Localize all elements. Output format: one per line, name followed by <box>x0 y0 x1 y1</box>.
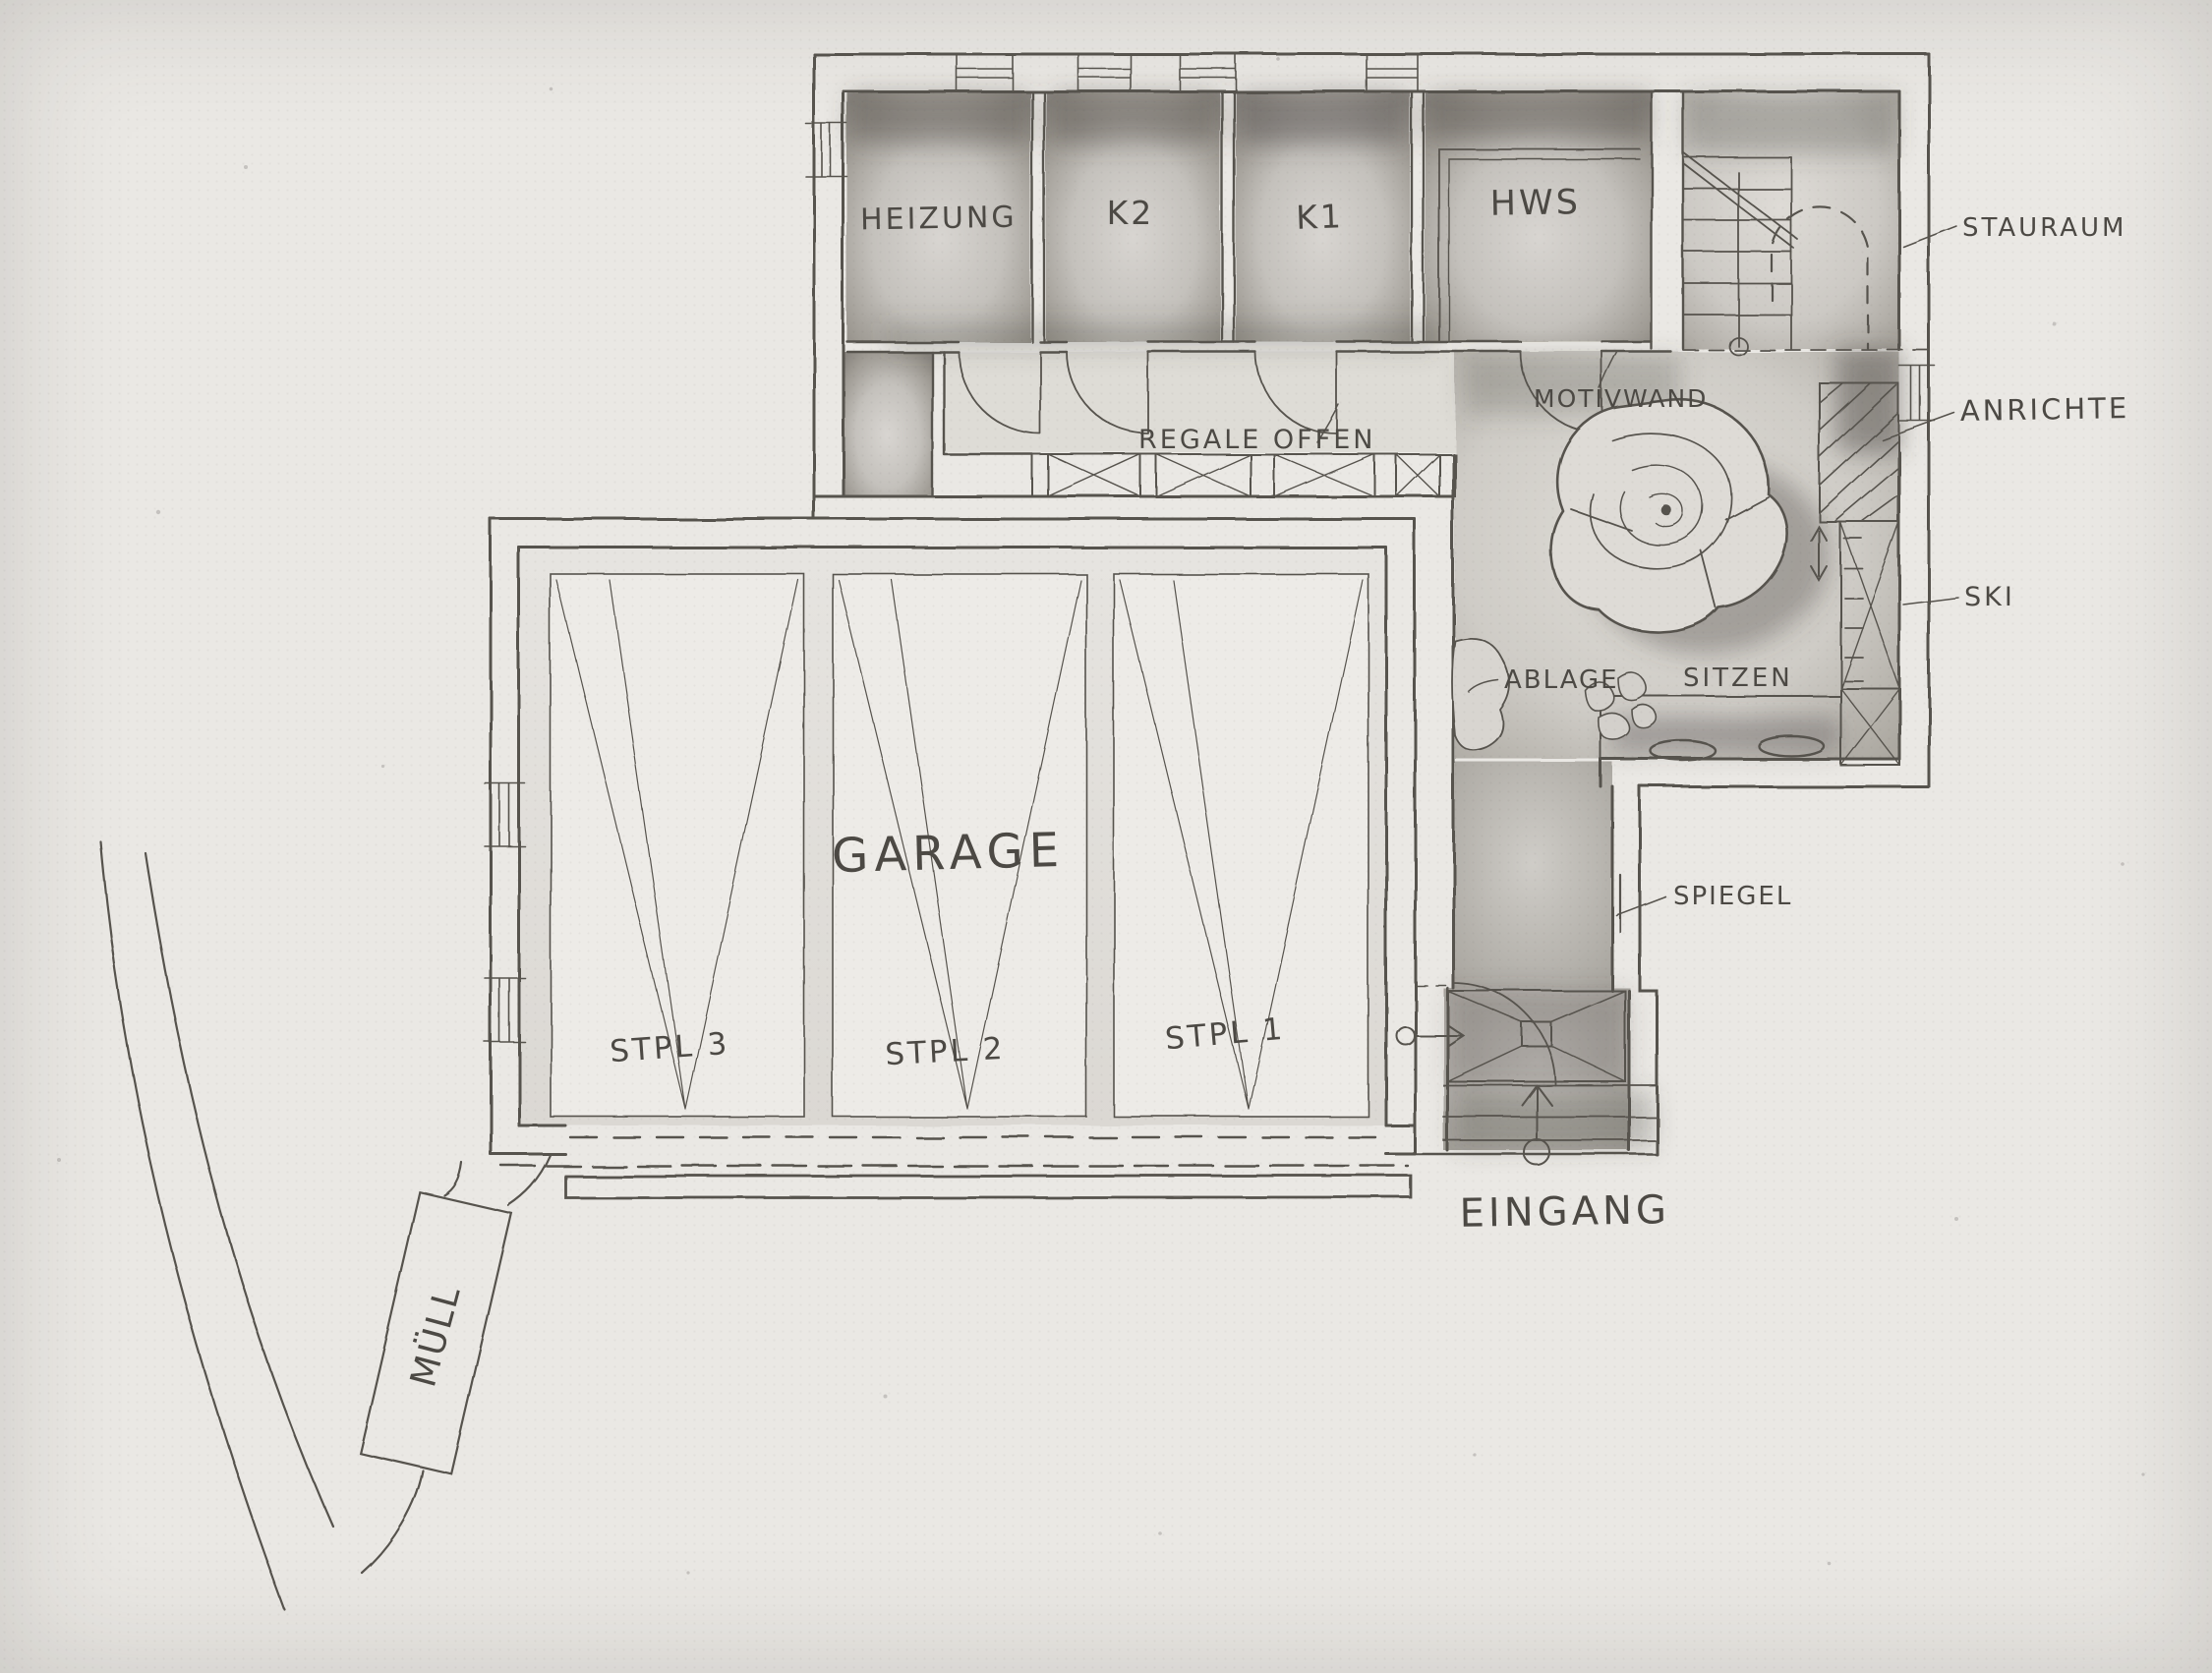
annotation-stauraum: STAURAUM <box>1962 213 2126 243</box>
annotation-ablage: ABLAGE <box>1504 665 1619 695</box>
annotation-motivwand: MOTIVWAND <box>1534 384 1708 413</box>
room-label-hws: HWS <box>1489 183 1581 224</box>
garage-apron <box>565 1176 1411 1197</box>
annotation-spiegel: SPIEGEL <box>1673 882 1792 911</box>
annotation-regale-offen: REGALE OFFEN <box>1138 425 1375 455</box>
annotation-eingang: EINGANG <box>1459 1187 1670 1237</box>
annotation-ski: SKI <box>1964 582 2015 612</box>
floor-plan-page: HEIZUNG K2 K1 HWS GARAGE STPL 3 STPL 2 S… <box>0 0 2212 1673</box>
ablage-plant <box>1452 638 1510 750</box>
room-label-garage: GARAGE <box>831 823 1065 884</box>
room-label-k2: K2 <box>1107 194 1155 232</box>
side-door-arrow-origin <box>1396 1026 1414 1044</box>
annotation-anrichte: ANRICHTE <box>1960 391 2130 428</box>
floor-plan-canvas: HEIZUNG K2 K1 HWS GARAGE STPL 3 STPL 2 S… <box>0 0 2212 1673</box>
stall-label-stpl2: STPL 2 <box>885 1031 1007 1072</box>
driveway-path <box>100 841 551 1610</box>
annotation-muell: MÜLL <box>402 1281 469 1392</box>
wall-mass-below-heizung <box>844 352 932 496</box>
shelf-regale-offen <box>1032 454 1455 496</box>
room-label-heizung: HEIZUNG <box>860 201 1018 238</box>
entry-corridor-floor <box>1453 762 1612 988</box>
room-label-k1: K1 <box>1296 197 1345 237</box>
garage-door <box>501 1137 1411 1197</box>
annotation-sitzen: SITZEN <box>1683 663 1793 693</box>
